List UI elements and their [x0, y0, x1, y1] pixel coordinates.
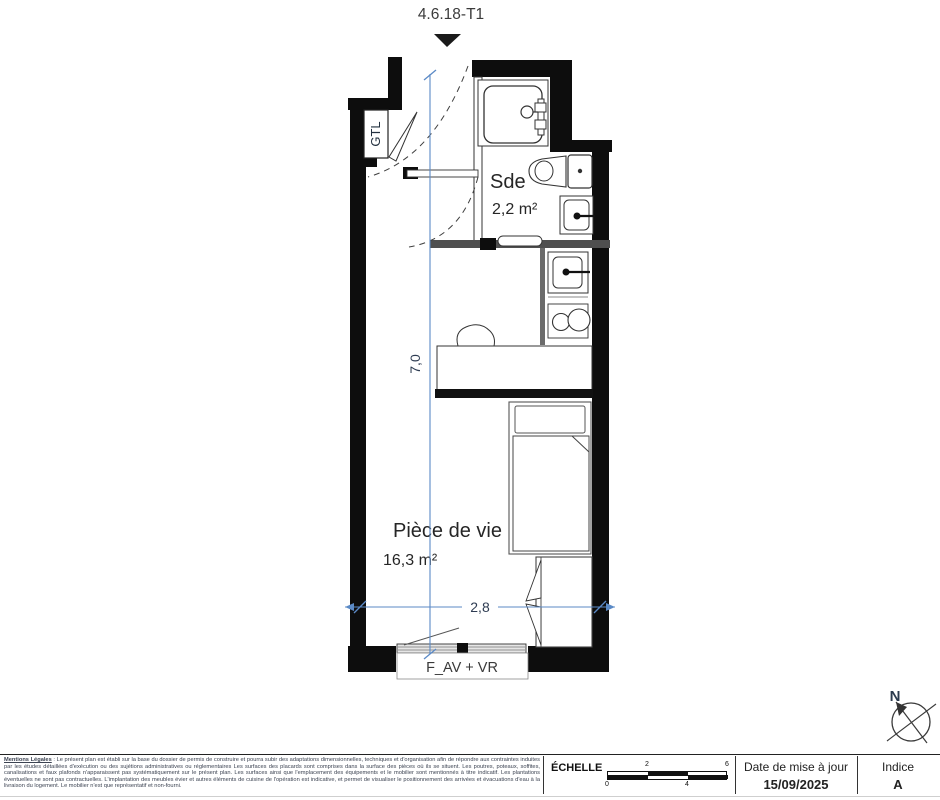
- scale-tick-6: 6: [721, 761, 733, 768]
- gtl-label: GTL: [368, 121, 383, 146]
- washbasin-tap-base: [574, 213, 581, 220]
- window-mullion: [457, 643, 468, 654]
- indice-label: Indice: [858, 760, 938, 774]
- bathroom-door-swing-arc: [409, 177, 478, 247]
- burner-left: [553, 314, 570, 331]
- north-compass: N: [887, 688, 936, 743]
- wardrobe-door-bottom: [526, 604, 541, 645]
- chair: [457, 325, 495, 346]
- wardrobe: [526, 557, 592, 647]
- shower-mixer-top: [535, 103, 546, 112]
- footer-divider-1: [543, 756, 544, 794]
- shower-mixer-bottom: [535, 120, 546, 129]
- wall-bottom-right: [528, 646, 609, 672]
- washbasin: [560, 196, 595, 234]
- wall-left: [350, 108, 366, 648]
- compass-cross-line: [887, 704, 936, 741]
- mattress: [513, 436, 589, 551]
- door-threshold: [498, 236, 542, 246]
- north-label: N: [890, 688, 901, 705]
- room-sde-area: 2,2 m²: [492, 201, 538, 218]
- dim-h-arrow-left: [345, 603, 354, 611]
- scale-bar: [607, 771, 727, 780]
- dim-width-label: 2,8: [470, 599, 490, 615]
- room-sde-name: Sde: [490, 171, 526, 193]
- plan-title: 4.6.18-T1: [418, 6, 484, 23]
- date-block: Date de mise à jour 15/09/2025: [736, 760, 856, 792]
- table-edge: [435, 389, 593, 398]
- wardrobe-door-top: [526, 560, 541, 601]
- kitchen-sink: [548, 252, 590, 297]
- legal-mentions: Mentions Légales : Le présent plan est é…: [4, 757, 540, 790]
- indice-value: A: [858, 777, 938, 792]
- bathroom-door-leaf: [407, 170, 478, 177]
- legal-title: Mentions Légales: [4, 757, 52, 763]
- wall-bottom-left: [348, 646, 396, 672]
- scale-bar-segment: [648, 772, 688, 776]
- date-label: Date de mise à jour: [736, 760, 856, 774]
- dim-height-label: 7,0: [407, 354, 423, 374]
- scale-tick-2: 2: [641, 761, 653, 768]
- window: F_AV + VR: [397, 628, 528, 679]
- shower-head-icon: [521, 106, 533, 118]
- scale-label: ÉCHELLE: [551, 762, 602, 774]
- shower: [478, 80, 548, 146]
- dimension-vertical: [424, 70, 436, 659]
- burner-right: [568, 309, 590, 331]
- title-pointer-icon: [434, 34, 461, 47]
- page-bottom-rule: [0, 796, 940, 797]
- wall-kitchen-partition: [540, 248, 545, 345]
- cooktop: [548, 304, 590, 338]
- scale-tick-0: 0: [601, 781, 613, 788]
- window-opening-line: [404, 628, 459, 645]
- pillow: [515, 406, 585, 433]
- wall-right: [592, 146, 609, 672]
- wall-shower-right: [550, 70, 572, 152]
- scale-tick-4: 4: [681, 781, 693, 788]
- footer-top-rule: [0, 754, 940, 755]
- toilet: [529, 155, 592, 188]
- threshold-block: [480, 238, 496, 250]
- room-vie-name: Pièce de vie: [393, 520, 502, 542]
- scale-bar-segment: [608, 775, 648, 779]
- sink-tap-base: [563, 269, 570, 276]
- indice-block: Indice A: [858, 760, 938, 792]
- dim-h-arrow-right: [606, 603, 615, 611]
- scale-bar-segment: [688, 775, 728, 779]
- wardrobe-box: [536, 557, 592, 647]
- bed: [509, 402, 591, 554]
- gtl-unit: GTL: [364, 110, 388, 158]
- toilet-flush-button: [578, 169, 582, 173]
- window-label: F_AV + VR: [426, 660, 498, 676]
- date-value: 15/09/2025: [736, 777, 856, 792]
- entry-door-leaf: [389, 112, 417, 161]
- legal-text: : Le présent plan est établi sur la base…: [4, 757, 540, 789]
- floor-plan-page: 4.6.18-T1: [0, 0, 940, 800]
- toilet-seat: [535, 161, 553, 181]
- floor-plan-drawing: 4.6.18-T1: [0, 0, 940, 754]
- shower-tray: [484, 86, 542, 143]
- gtl-hinge-block: [363, 158, 377, 167]
- table: [437, 346, 592, 390]
